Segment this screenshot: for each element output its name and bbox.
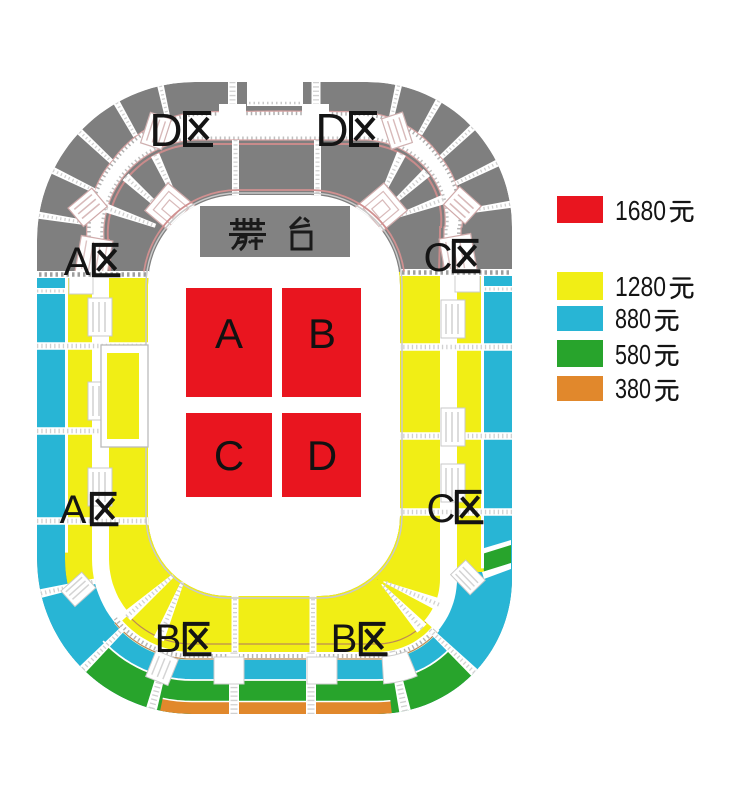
- svg-text:D: D: [307, 432, 337, 479]
- svg-text:C: C: [427, 487, 456, 531]
- svg-text:A: A: [60, 488, 87, 532]
- svg-text:C: C: [214, 432, 244, 479]
- svg-text:B: B: [308, 310, 336, 357]
- svg-text:380: 380: [615, 373, 651, 404]
- svg-text:1680: 1680: [615, 195, 666, 226]
- svg-text:580: 580: [615, 339, 651, 370]
- svg-text:A: A: [215, 310, 243, 357]
- svg-text:1280: 1280: [615, 271, 666, 302]
- svg-text:D: D: [315, 104, 348, 156]
- svg-text:C: C: [424, 236, 453, 280]
- svg-text:A: A: [64, 240, 91, 284]
- svg-text:B: B: [331, 617, 358, 661]
- svg-text:880: 880: [615, 303, 651, 334]
- svg-text:D: D: [149, 104, 182, 156]
- svg-text:B: B: [155, 617, 182, 661]
